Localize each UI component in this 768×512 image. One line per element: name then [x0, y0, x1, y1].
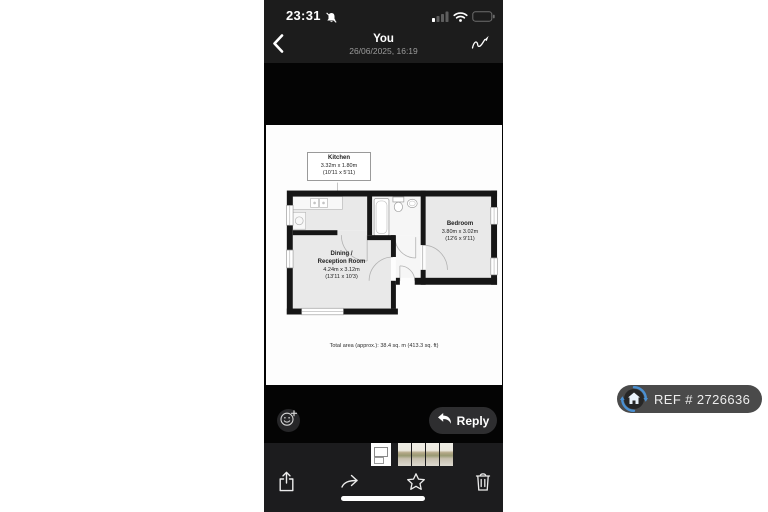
bottom-toolbar [264, 443, 503, 512]
status-time: 23:31 [286, 8, 321, 23]
kitchen-label: Kitchen 3.32m x 1.80m (10'11 x 5'11) [307, 152, 371, 181]
thumbnail-plan-detail [374, 447, 388, 457]
dining-metric: 4.24m x 3.12m [293, 267, 390, 274]
wifi-icon [453, 9, 468, 27]
phone-screenshot: 23:31 [264, 0, 503, 512]
total-area-text: Total area (approx.): 38.4 sq. m (413.3 … [266, 343, 502, 349]
cellular-signal-icon [432, 9, 449, 27]
bedroom-label: Bedroom 3.80m x 3.02m (12'6 x 9'11) [425, 221, 495, 243]
sender-name: You [304, 33, 463, 45]
thumbnail-strip [398, 443, 453, 466]
kitchen-imperial: (10'11 x 5'11) [308, 170, 370, 177]
status-right-icons [432, 9, 495, 27]
ref-number: REF # 2726636 [654, 392, 750, 407]
kitchen-name: Kitchen [308, 155, 370, 163]
notifications-silenced-icon [326, 10, 337, 28]
battery-icon [472, 9, 495, 27]
thumbnail-plan-detail [374, 457, 384, 464]
share-button[interactable] [273, 469, 299, 493]
home-indicator[interactable] [341, 496, 425, 501]
reply-button[interactable]: Reply [429, 407, 497, 434]
bedroom-name: Bedroom [425, 221, 495, 229]
thumbnail-photo[interactable] [440, 443, 453, 466]
favorite-button[interactable] [403, 469, 429, 493]
house-refresh-icon [619, 384, 649, 419]
reply-arrow-icon [437, 412, 452, 430]
reply-label: Reply [457, 414, 490, 428]
dining-label: Dining / Reception Room 4.24m x 3.12m (1… [293, 251, 390, 281]
dining-imperial: (13'11 x 10'3) [293, 274, 390, 281]
thumbnail-floorplan[interactable] [371, 443, 391, 466]
thumbnail-photo[interactable] [398, 443, 411, 466]
thumbnail-photo[interactable] [412, 443, 425, 466]
ref-badge: REF # 2726636 [617, 385, 762, 413]
top-bar: 23:31 [264, 0, 503, 63]
floorplan-image[interactable]: Kitchen 3.32m x 1.80m (10'11 x 5'11) Din… [266, 125, 502, 385]
thumbnail-photo[interactable] [426, 443, 439, 466]
smiley-plus-icon [280, 410, 297, 432]
header-titles: You 26/06/2025, 16:19 [304, 33, 463, 56]
back-button[interactable] [272, 34, 284, 58]
delete-button[interactable] [470, 469, 496, 493]
add-reaction-button[interactable] [277, 409, 300, 432]
message-timestamp: 26/06/2025, 16:19 [304, 46, 463, 56]
screenshot-canvas: 23:31 [0, 0, 768, 512]
bedroom-metric: 3.80m x 3.02m [425, 229, 495, 236]
forward-button[interactable] [336, 469, 362, 493]
kitchen-metric: 3.32m x 1.80m [308, 163, 370, 170]
dining-name: Dining / Reception Room [293, 251, 390, 267]
markup-button[interactable] [471, 35, 491, 55]
bedroom-imperial: (12'6 x 9'11) [425, 236, 495, 243]
